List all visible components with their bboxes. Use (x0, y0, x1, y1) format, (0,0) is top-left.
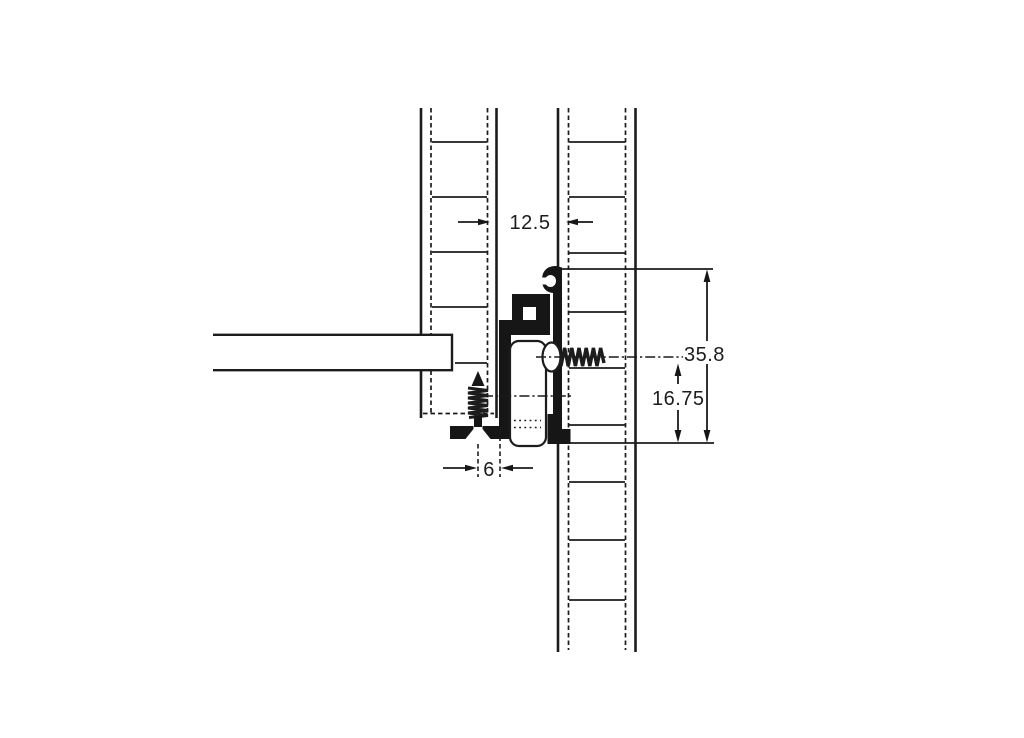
rail-top-bar (512, 294, 550, 307)
dimension-arrowhead (675, 430, 682, 443)
drawer-slide-section-diagram: 12.5 35.8 16.75 6 (0, 0, 1024, 738)
dimension-label-screw-offset: 6 (483, 459, 495, 481)
dimension-label-centerline-height: 16.75 (652, 388, 705, 410)
drawing-canvas: 12.5 35.8 16.75 6 (0, 0, 1024, 738)
cabinet-rail-foot-tab (562, 429, 571, 444)
dimension-label-gap-width: 12.5 (510, 212, 551, 234)
curl-opening (545, 275, 556, 287)
dimension-overall-height: 35.8 (684, 270, 725, 443)
cabinet-rail-foot (548, 414, 563, 444)
drawer-side-panel (421, 108, 497, 418)
screw-shank (474, 416, 482, 427)
panel-hatch-rungs (432, 142, 487, 363)
dimension-arrowhead (501, 465, 513, 471)
cabinet-side-panel (558, 108, 636, 652)
drawer-bottom-board (213, 335, 452, 370)
dimension-arrowhead (704, 270, 711, 283)
dimension-gap-width: 12.5 (458, 212, 593, 234)
dimension-centerline-height: 16.75 (652, 364, 705, 443)
vertical-mounting-screw (468, 371, 488, 427)
curl-opening-slot (541, 278, 546, 285)
panel-hatch-rungs (569, 142, 625, 600)
dimension-arrowhead (465, 465, 477, 471)
rail-mid-flange (499, 320, 550, 335)
rail-top-riser (536, 306, 550, 321)
screw-tip (472, 371, 485, 386)
dimension-label-overall-height: 35.8 (684, 344, 725, 366)
dimension-arrowhead (704, 430, 711, 443)
rail-top-lip (512, 306, 523, 321)
dimension-arrowhead (675, 364, 682, 377)
